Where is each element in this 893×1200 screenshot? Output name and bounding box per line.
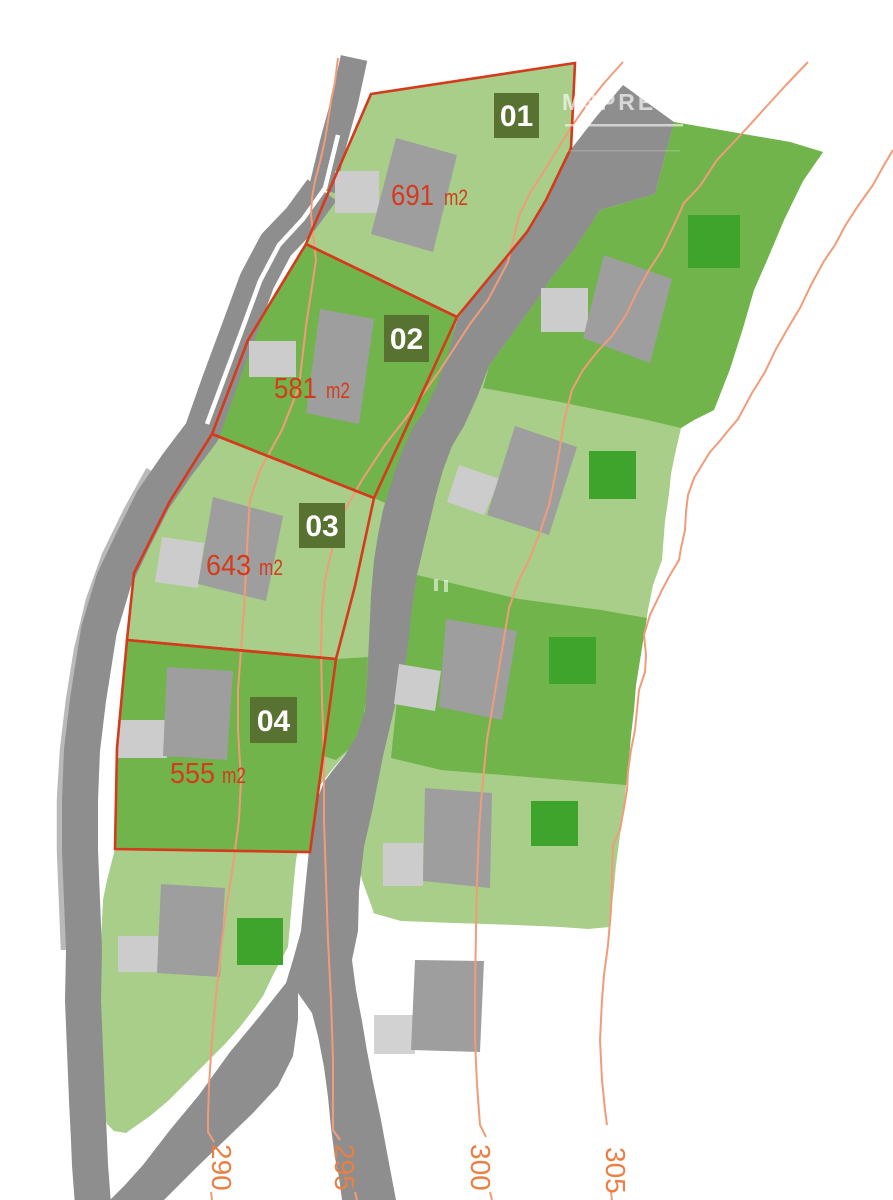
svg-text:643: 643 [206, 550, 251, 582]
svg-text:M3PREMIUM: M3PREMIUM [562, 89, 730, 115]
svg-text:581: 581 [274, 373, 317, 405]
svg-text:295: 295 [329, 1144, 360, 1191]
svg-text:04: 04 [257, 705, 291, 738]
svg-text:m2: m2 [444, 185, 468, 210]
svg-text:691: 691 [391, 180, 434, 212]
svg-text:01: 01 [500, 100, 533, 133]
svg-text:m2: m2 [259, 555, 283, 580]
svg-text:03: 03 [305, 510, 338, 543]
svg-text:290: 290 [206, 1144, 237, 1191]
svg-text:02: 02 [390, 323, 423, 356]
svg-text:305: 305 [600, 1147, 631, 1194]
svg-text:m2: m2 [222, 763, 246, 788]
svg-text:555: 555 [170, 758, 215, 790]
svg-text:300: 300 [465, 1144, 496, 1191]
svg-text:m2: m2 [326, 378, 350, 403]
